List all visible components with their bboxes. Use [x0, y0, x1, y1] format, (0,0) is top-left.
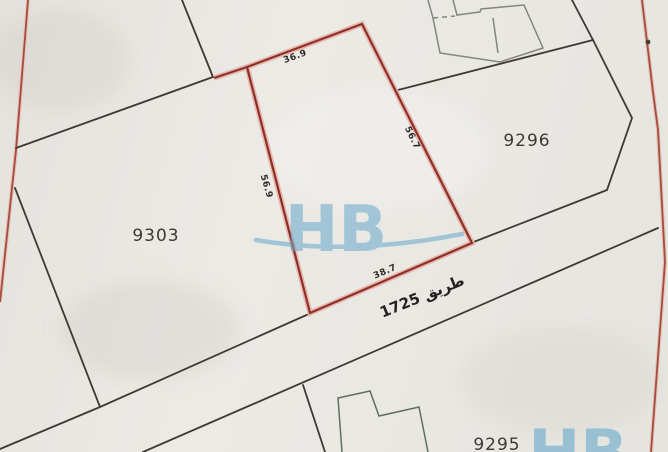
boundary-9295-west	[303, 385, 325, 452]
building-footprint-bottom	[338, 391, 428, 452]
plot-label-9296: 9296	[503, 131, 550, 151]
building-top-divider	[493, 18, 498, 53]
boundary-9296-east	[471, 40, 632, 243]
boundary-topplot-northeast	[572, 0, 593, 40]
subject-plot-corner-tie	[214, 67, 247, 78]
boundary-9296-north	[398, 40, 593, 90]
watermark-corner: HB	[528, 416, 627, 452]
plot-map-canvas: 9303 9296 9295 36.9 56.7 56.9 38.7 طريق …	[0, 0, 668, 452]
watermark-corner-text: HB	[528, 416, 627, 452]
watermark-center: HB	[256, 193, 462, 267]
building-top-outline	[433, 0, 543, 62]
plot-label-9303: 9303	[132, 226, 179, 246]
boundary-top-left-upper	[182, 0, 213, 77]
building-footprint-top	[428, 0, 543, 62]
building-top-wall-a	[428, 0, 433, 18]
dimension-left: 56.9	[258, 173, 274, 199]
building-bottom-outline	[338, 391, 428, 452]
plot-label-9295: 9295	[473, 435, 520, 452]
border-mark-dot	[646, 40, 651, 45]
cadastral-map: 9303 9296 9295 36.9 56.7 56.9 38.7 طريق …	[0, 0, 668, 452]
watermark-center-text: HB	[285, 193, 387, 267]
building-top-dashed-wall	[433, 16, 455, 18]
